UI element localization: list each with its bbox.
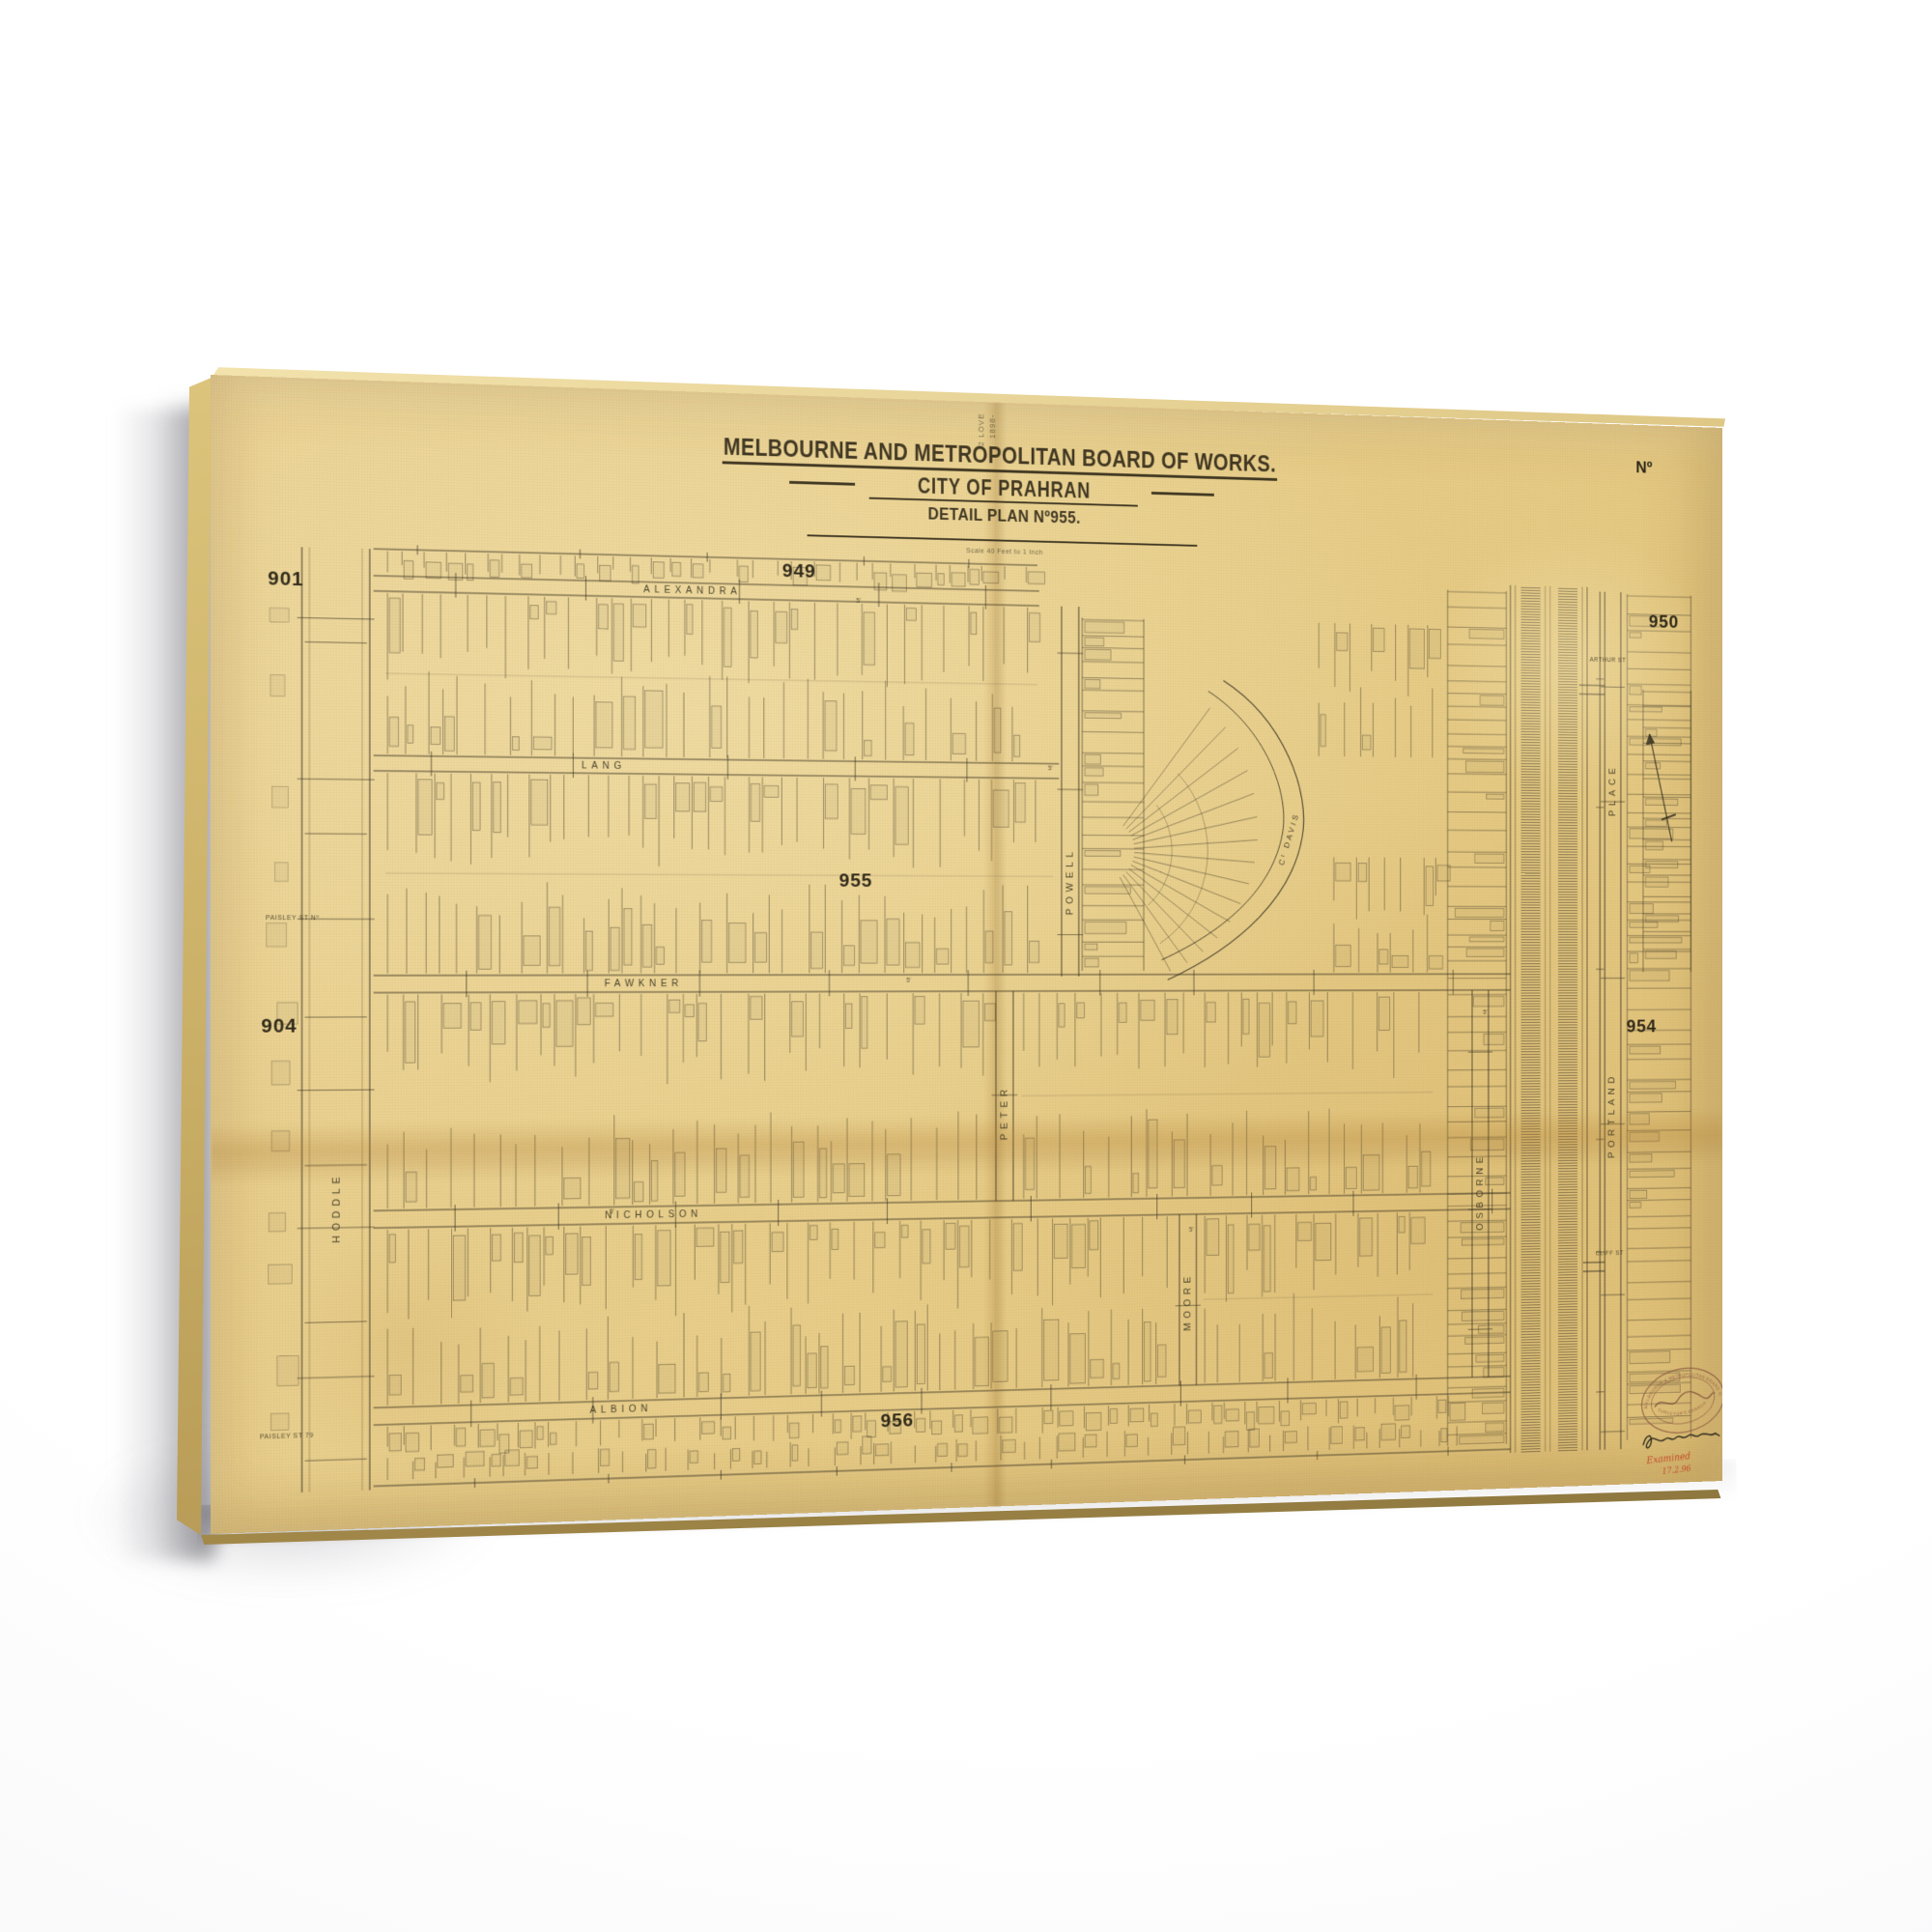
plan-number-956: 956 (881, 1409, 915, 1433)
street-label-alexandra: ALEXANDRA (643, 583, 741, 597)
map-title-line3: DETAIL PLAN Nº955. (928, 504, 1081, 528)
street-label-moore: MOORE (1182, 1272, 1193, 1331)
railway-band (1511, 585, 1587, 1453)
plan-number-904: 904 (261, 1015, 297, 1038)
lane-mark: 5' (906, 976, 911, 984)
street-label-portland: PORTLAND (1607, 1072, 1617, 1158)
street-label-place: PLACE (1608, 764, 1618, 816)
plan-number-955: 955 (839, 869, 873, 892)
canvas-print: 2 LOVE 1898- MELBOURNE AND METROPOLITAN … (211, 375, 1722, 1534)
sheet-number-corner: Nº (1635, 459, 1652, 479)
street-label-osborne: OSBORNE (1475, 1152, 1485, 1231)
lane-mark: 5' (1483, 1008, 1488, 1015)
street-label-nicholson: NICHOLSON (605, 1208, 702, 1221)
street-label-lang: LANG (582, 760, 626, 772)
street-label-albion: ALBION (590, 1403, 653, 1416)
plan-number-954: 954 (1627, 1016, 1657, 1037)
lane-mark: 5' (1189, 1225, 1194, 1234)
lane-mark: 5' (856, 596, 861, 605)
plan-number-901: 901 (268, 567, 303, 591)
street-label-powell: POWELL (1065, 847, 1076, 915)
street-label-hoddle: HODDLE (331, 1172, 343, 1242)
street-label-peter: PETER (1000, 1085, 1010, 1140)
plan-number-949: 949 (782, 560, 816, 583)
lane-mark: 5' (610, 1207, 614, 1215)
street-label-fawkner: FAWKNER (605, 978, 683, 989)
street-label-paisley-upper: PAISLEY ST Nº (266, 915, 320, 922)
street-label-arthur: ARTHUR ST (1590, 657, 1627, 664)
page: { "colors": { "wall": "#ffffff", "paper"… (0, 0, 1932, 1932)
plan-number-950: 950 (1649, 611, 1679, 634)
davis-crescent (1148, 679, 1303, 980)
file-annotation-line2: 1898- (988, 413, 997, 439)
lane-mark: 5' (1048, 763, 1053, 772)
street-label-cliff: CLIFF ST (1596, 1250, 1624, 1257)
